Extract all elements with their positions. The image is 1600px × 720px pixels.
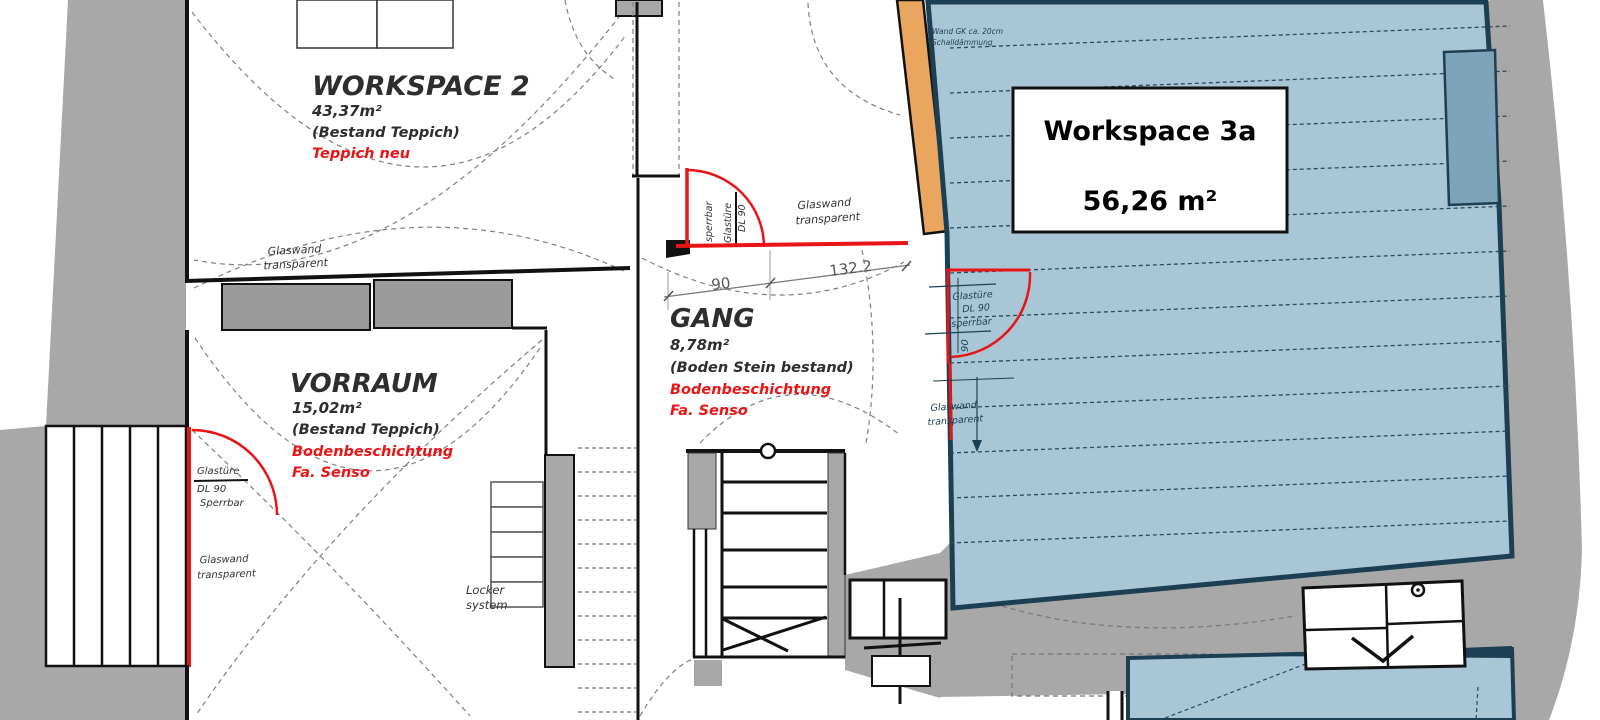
locker-box	[491, 557, 543, 582]
wall-note-line2: Schalldämmung	[932, 38, 993, 47]
vorraum-floor-new1: Bodenbeschichtung	[292, 444, 453, 460]
vorraum-door-label2: DL 90	[197, 484, 226, 495]
blue-pillar	[1444, 50, 1499, 205]
vorraum-floor-new2: Fa. Senso	[292, 465, 370, 481]
workspace3a-area: 56,26 m²	[1083, 186, 1218, 217]
locker-label1: Locker	[466, 583, 506, 597]
exterior-stair-left	[46, 426, 186, 666]
vorraum-floor-existing: (Bestand Teppich)	[292, 422, 440, 438]
vorraum-door-label1: Glastüre	[197, 466, 239, 477]
wall-note-line1: Wand GK ca. 20cm	[932, 27, 1003, 36]
gang-door-label2: DL 90	[737, 204, 748, 232]
handrail-post	[761, 444, 775, 458]
wall-band-middle	[222, 280, 547, 330]
floor-plan-canvas: WORKSPACE 2 43,37m² (Bestand Teppich) Te…	[0, 0, 1600, 720]
wall-gap	[1109, 691, 1121, 720]
ws3a-door-label2: DL 90	[962, 302, 990, 315]
ws3a-door-dim: 90	[960, 339, 971, 352]
door-leaf	[194, 480, 248, 481]
wall-block	[374, 280, 512, 328]
dim-90: 90	[710, 274, 731, 294]
gang-name: GANG	[670, 304, 755, 334]
wall-pillar	[828, 453, 845, 658]
workspace2-area: 43,37m²	[311, 102, 382, 120]
floor-cutout	[940, 694, 1128, 720]
ceiling-panel	[297, 0, 377, 48]
stair-outline	[1303, 581, 1465, 669]
vorraum-area: 15,02m²	[292, 399, 362, 417]
gang-door-label1: Glastüre	[723, 203, 734, 243]
workspace2-floor-new: Teppich neu	[312, 146, 410, 162]
locker-box	[491, 482, 543, 507]
gang-door-label3: sperrbar	[704, 201, 715, 242]
glass-wall-label-ws2: Glaswand transparent	[262, 242, 329, 272]
workspace2-name: WORKSPACE 2	[312, 71, 530, 102]
wall-block	[694, 660, 722, 686]
locker-box	[491, 532, 543, 557]
workspace3a-label-box: Workspace 3a 56,26 m²	[1013, 88, 1287, 232]
floor-plan: WORKSPACE 2 43,37m² (Bestand Teppich) Te…	[0, 0, 1600, 720]
vorraum-door-label3: Sperrbar	[200, 498, 245, 509]
handrail-post-dot	[1416, 588, 1420, 592]
wall-pillar	[688, 453, 716, 529]
workspace2-floor-existing: (Bestand Teppich)	[312, 125, 460, 141]
gang-floor-new2: Fa. Senso	[670, 403, 748, 419]
gang-floor-existing: (Boden Stein bestand)	[670, 360, 854, 376]
wall-block	[222, 284, 370, 330]
zone-workspace3a: Wand GK ca. 20cm Schalldämmung Glastüre …	[925, 2, 1512, 608]
workspace3a-name: Workspace 3a	[1044, 116, 1257, 147]
wall-pillar	[545, 455, 574, 667]
ceiling-panel	[377, 0, 453, 48]
svg-text:Glaswand: Glaswand	[199, 554, 249, 567]
locker-label2: system	[466, 598, 508, 612]
wall-cap	[616, 0, 662, 16]
exterior-stair-outline	[46, 426, 186, 666]
gang-floor-new1: Bodenbeschichtung	[670, 382, 831, 398]
vorraum-name: VORRAUM	[290, 369, 438, 399]
gang-area: 8,78m²	[670, 336, 730, 354]
locker-box	[491, 507, 543, 532]
stair-bottom-right	[1303, 581, 1465, 669]
shaft-box	[850, 580, 946, 638]
svg-text:transparent: transparent	[197, 568, 257, 581]
shaft-box-small	[872, 656, 930, 686]
